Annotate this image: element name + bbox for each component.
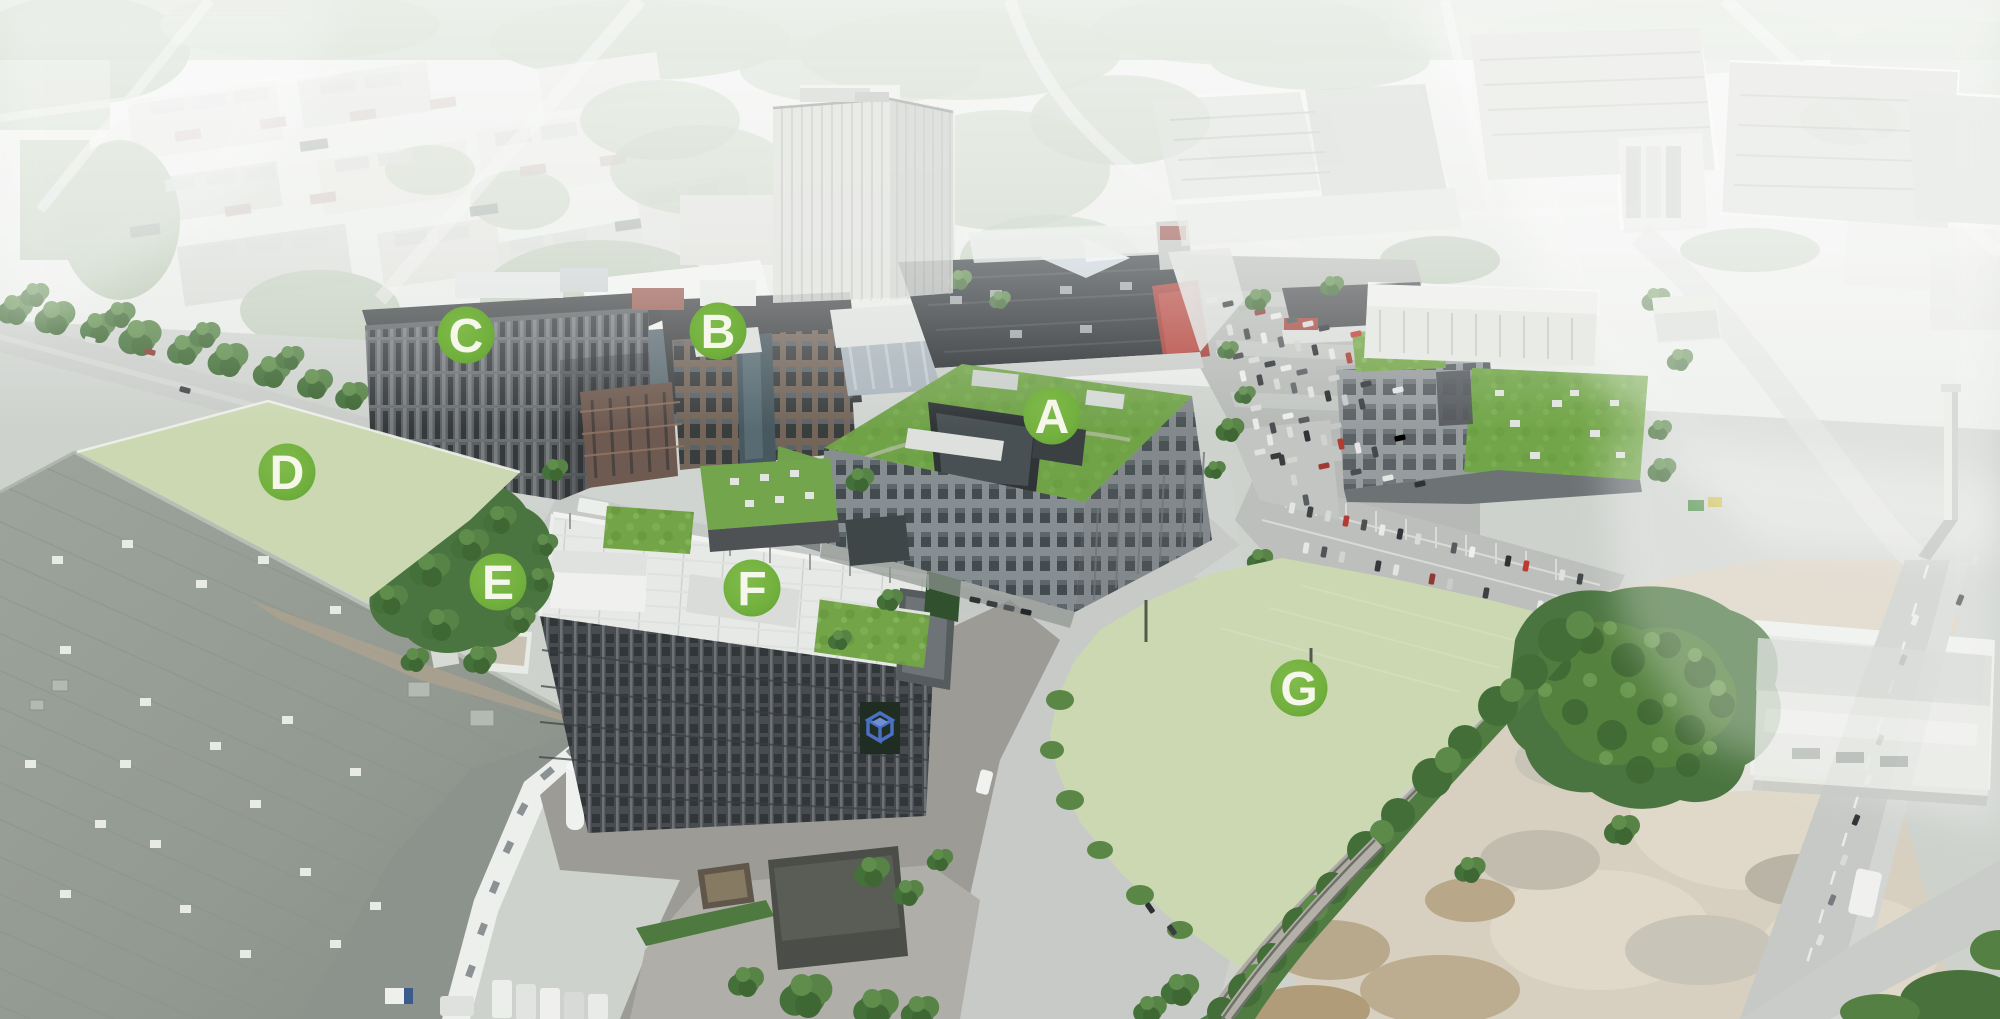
- svg-text:B: B: [701, 306, 736, 359]
- svg-text:F: F: [737, 563, 766, 616]
- svg-text:D: D: [270, 447, 305, 500]
- svg-text:E: E: [482, 557, 514, 610]
- svg-text:A: A: [1035, 391, 1070, 444]
- svg-text:G: G: [1280, 663, 1317, 716]
- svg-text:C: C: [449, 310, 484, 363]
